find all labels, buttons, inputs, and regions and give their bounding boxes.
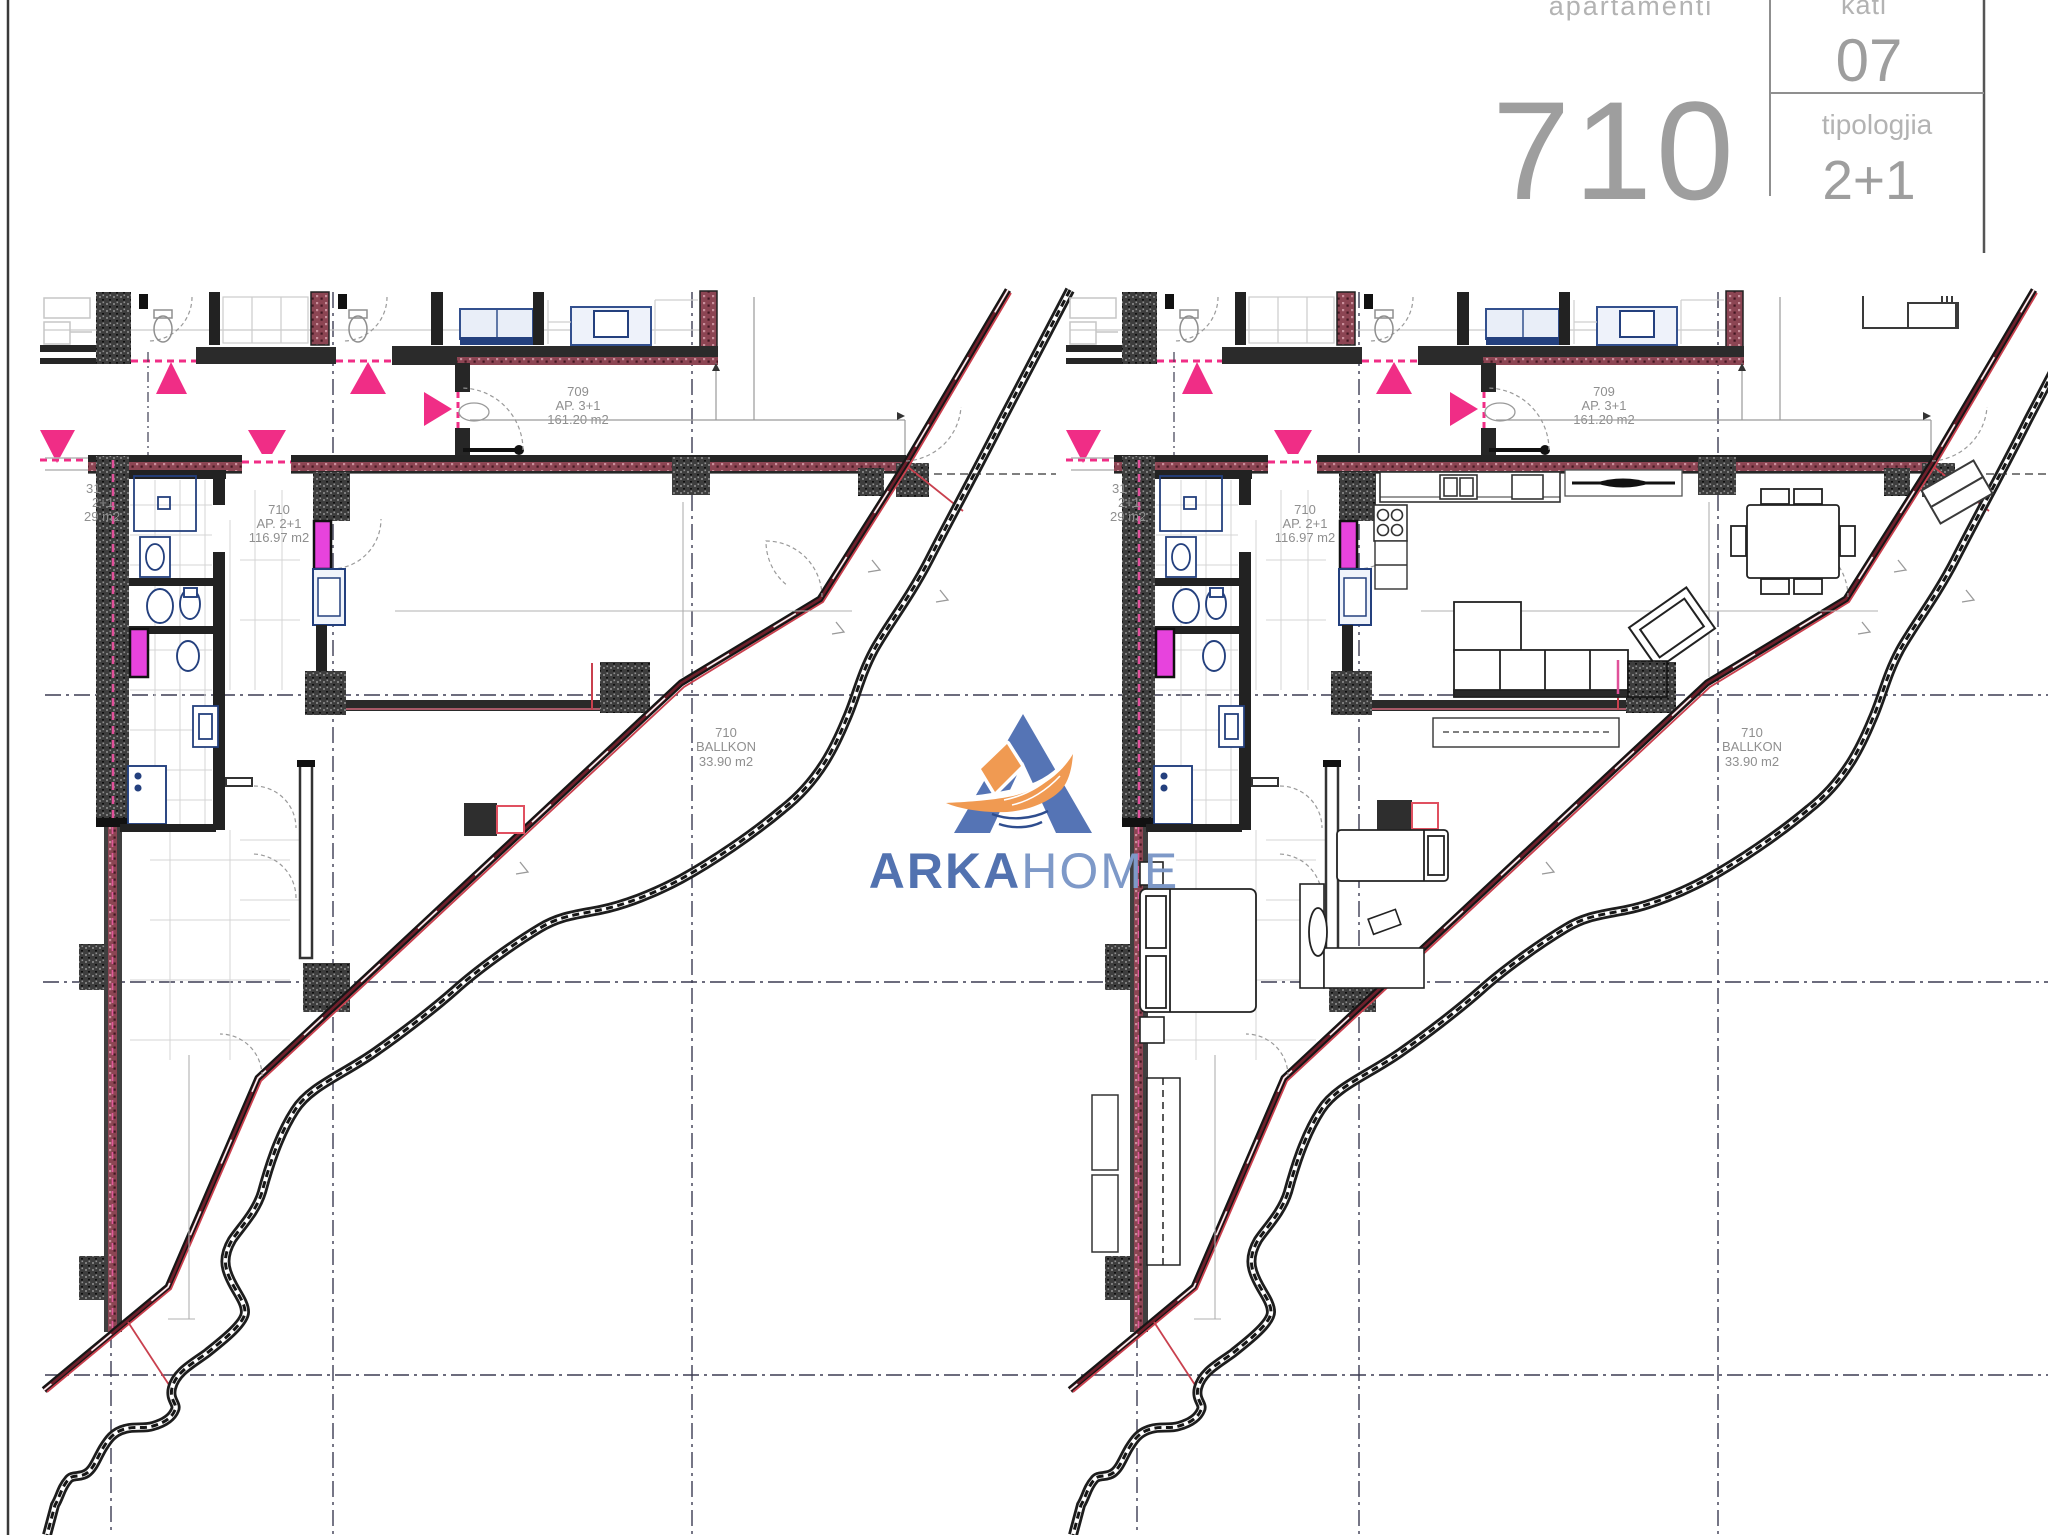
svg-text:709: 709: [567, 384, 589, 399]
svg-text:31: 31: [1112, 481, 1126, 496]
svg-text:apartamenti: apartamenti: [1549, 0, 1714, 21]
svg-text:2+1: 2+1: [92, 495, 114, 510]
svg-text:tipologjia: tipologjia: [1822, 109, 1933, 140]
svg-text:AP. 2+1: AP. 2+1: [1283, 516, 1328, 531]
svg-text:116.97 m2: 116.97 m2: [1275, 530, 1335, 545]
svg-text:29 m2: 29 m2: [1110, 509, 1146, 524]
svg-text:AP. 3+1: AP. 3+1: [556, 398, 601, 413]
svg-text:ARKAHOME: ARKAHOME: [869, 843, 1179, 899]
svg-text:07: 07: [1836, 27, 1903, 94]
svg-text:kati: kati: [1841, 0, 1887, 20]
svg-text:2+1: 2+1: [1822, 149, 1915, 211]
svg-text:33.90 m2: 33.90 m2: [1725, 754, 1779, 769]
svg-text:2+1: 2+1: [1118, 495, 1140, 510]
svg-text:AP. 2+1: AP. 2+1: [257, 516, 302, 531]
svg-text:29 m2: 29 m2: [84, 509, 120, 524]
svg-text:AP. 3+1: AP. 3+1: [1582, 398, 1627, 413]
svg-text:710: 710: [1741, 725, 1763, 740]
svg-text:116.97 m2: 116.97 m2: [249, 530, 309, 545]
svg-text:31: 31: [86, 481, 100, 496]
svg-text:710: 710: [1294, 502, 1316, 517]
svg-text:710: 710: [715, 725, 737, 740]
svg-text:710: 710: [268, 502, 290, 517]
svg-text:BALLKON: BALLKON: [1722, 739, 1782, 754]
svg-text:709: 709: [1593, 384, 1615, 399]
svg-text:BALLKON: BALLKON: [696, 739, 756, 754]
svg-text:33.90 m2: 33.90 m2: [699, 754, 753, 769]
svg-text:710: 710: [1492, 72, 1738, 229]
